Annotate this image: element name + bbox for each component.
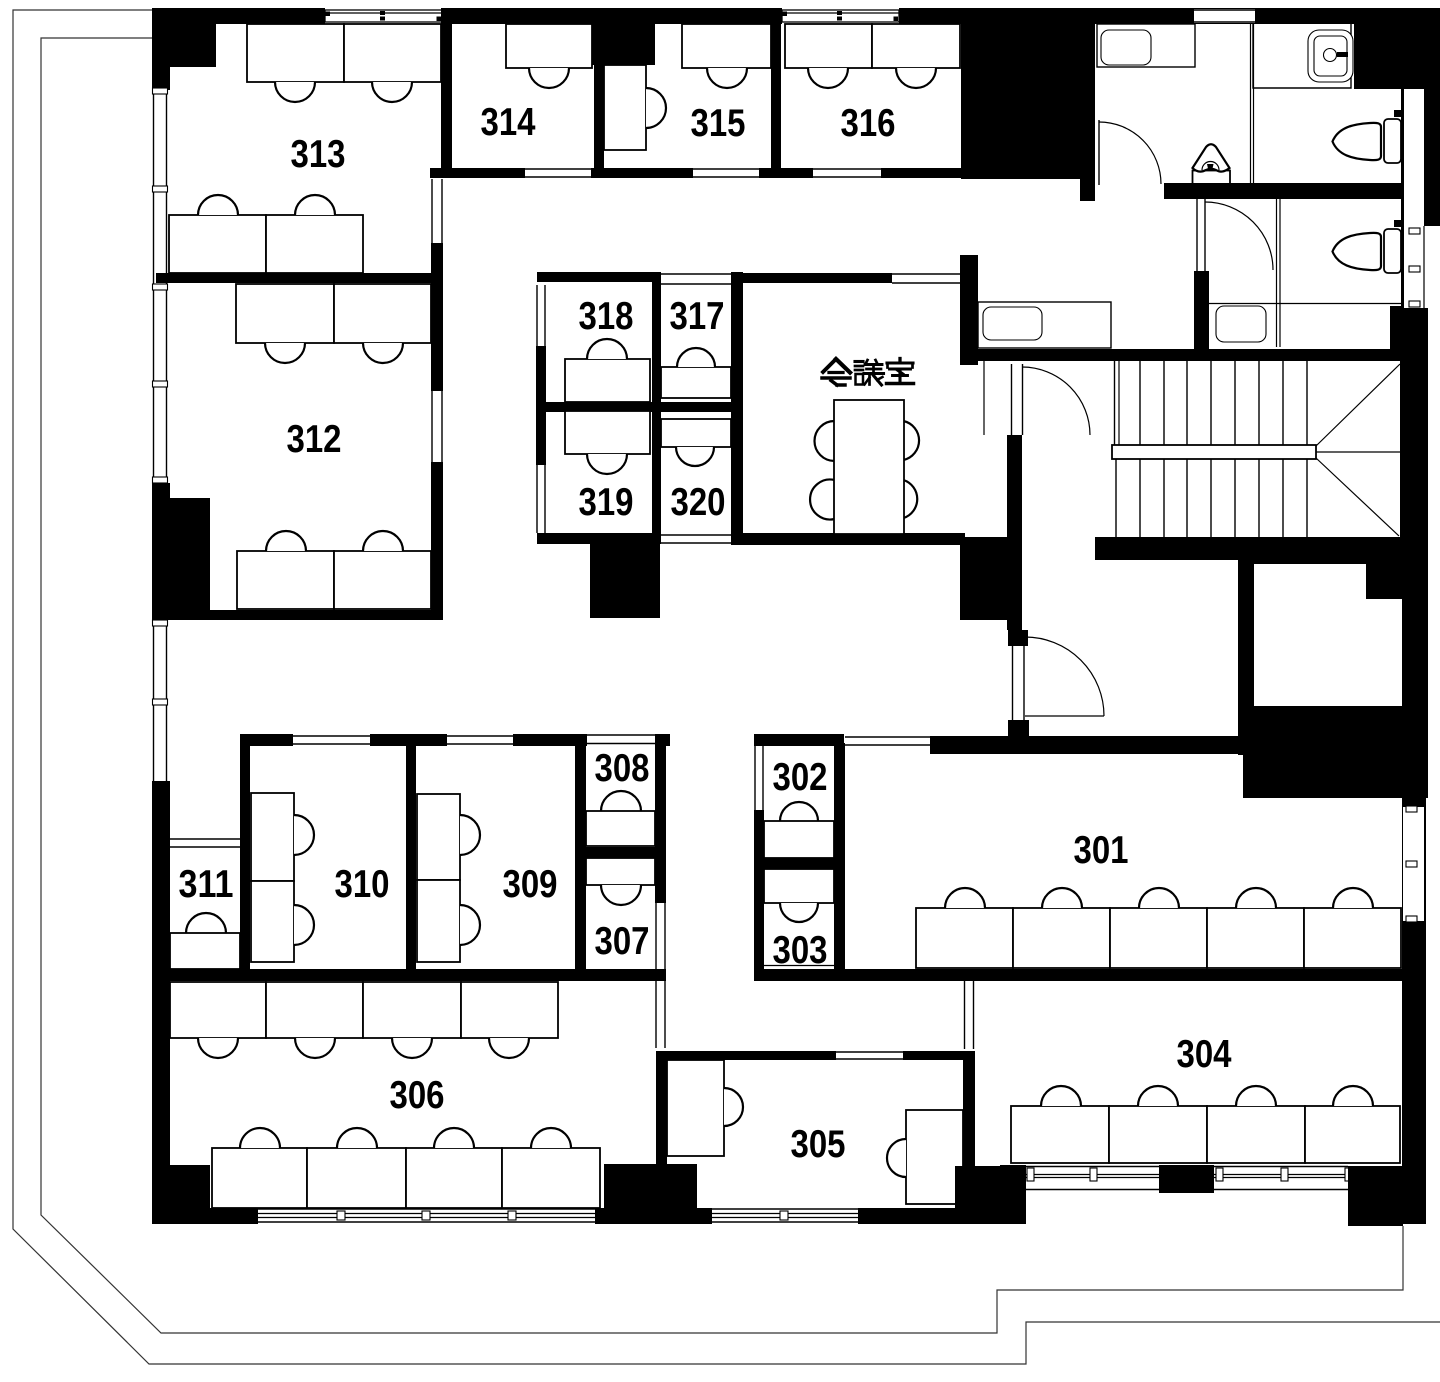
svg-text:313: 313 xyxy=(291,133,346,176)
svg-text:301: 301 xyxy=(1074,829,1129,872)
svg-text:302: 302 xyxy=(773,756,828,799)
svg-text:319: 319 xyxy=(579,481,634,524)
svg-text:311: 311 xyxy=(179,863,234,906)
svg-text:309: 309 xyxy=(503,863,558,906)
svg-text:317: 317 xyxy=(670,295,725,338)
svg-text:314: 314 xyxy=(481,101,536,144)
svg-text:307: 307 xyxy=(595,920,650,963)
svg-text:320: 320 xyxy=(671,481,726,524)
svg-text:318: 318 xyxy=(579,295,634,338)
svg-text:308: 308 xyxy=(595,747,650,790)
svg-text:312: 312 xyxy=(287,418,342,461)
svg-text:306: 306 xyxy=(390,1074,445,1117)
svg-text:316: 316 xyxy=(841,102,896,145)
svg-text:304: 304 xyxy=(1177,1033,1232,1076)
svg-text:305: 305 xyxy=(791,1123,846,1166)
svg-text:310: 310 xyxy=(335,863,390,906)
svg-text:315: 315 xyxy=(691,102,746,145)
